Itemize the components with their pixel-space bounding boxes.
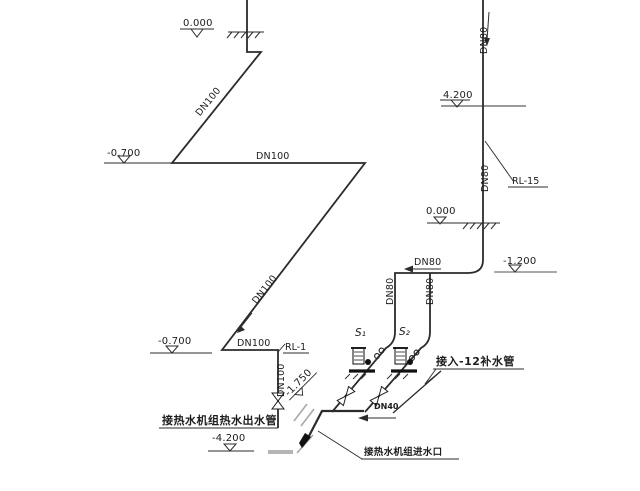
pipe-label: DN80	[425, 278, 436, 305]
pipe-label: DN100	[276, 363, 287, 397]
pipe-label: DN80	[479, 27, 490, 54]
elevation-value: 0.000	[426, 206, 456, 217]
gray-equipment-ghost-lines	[268, 404, 314, 454]
pump-icon	[387, 348, 417, 379]
elevation-marker: 4.200	[440, 90, 473, 107]
pipe-label: DN80	[414, 257, 441, 268]
pipe-label: DN40	[374, 402, 399, 411]
elevation-marker: 0.000	[180, 18, 214, 37]
pump-tags: S₁ S₂	[355, 326, 411, 339]
drawing-canvas: 0.000 -0.700 -0.700 -4.200 4.200	[0, 0, 640, 491]
elevation-value: 4.200	[443, 90, 473, 101]
elevation-marker: -0.700	[150, 336, 212, 353]
riser-tag: RL-15	[485, 141, 548, 187]
pipe-label: DN100	[194, 86, 224, 119]
riser-tag: RL-1	[278, 342, 309, 353]
annotation-text: 接入-12补水管	[436, 354, 515, 368]
pipe-label: DN80	[480, 165, 491, 192]
elevation-value: 0.000	[183, 18, 213, 29]
pump-tag-text: S₂	[399, 326, 411, 338]
elevation-value: -4.200	[212, 433, 245, 444]
pipe-label: DN100	[250, 273, 279, 306]
annotation-text: 接热水机组进水口	[364, 446, 442, 458]
elevation-value: -1.750	[283, 367, 314, 398]
elevation-marker: 0.000	[426, 206, 456, 224]
elevation-marker: -4.200	[208, 433, 254, 451]
elevation-value: -0.700	[107, 148, 140, 159]
annotation-text: 接热水机组热水出水管	[162, 413, 277, 427]
elevation-markers: 0.000 -0.700 -0.700 -4.200 4.200	[104, 18, 536, 451]
elevation-marker: -0.700	[104, 148, 172, 163]
main-outlet-pipe-run	[172, 0, 365, 428]
riser-tag-text: RL-15	[512, 176, 539, 187]
pipe-label: DN80	[385, 278, 396, 305]
annotation-inlet: 接热水机组进水口	[318, 431, 459, 459]
valve-icon	[337, 386, 355, 405]
pump-tag-text: S₁	[355, 327, 366, 339]
annotation-outlet: 接热水机组热水出水管	[159, 413, 278, 428]
riser-tags: RL-1 RL-15	[278, 141, 548, 353]
piping-axonometric-diagram: 0.000 -0.700 -0.700 -4.200 4.200	[0, 0, 640, 491]
elevation-marker: -1.200	[503, 256, 536, 272]
riser-tag-text: RL-1	[285, 342, 306, 353]
elevation-value: -0.700	[158, 336, 191, 347]
annotation-makeup: 接入-12补水管	[425, 354, 524, 384]
pump-icon	[345, 348, 375, 379]
elevation-marker: -1.750	[281, 365, 321, 405]
pipe-label: DN100	[237, 338, 271, 349]
pipe-label: DN100	[256, 151, 290, 162]
pipe-size-labels: DN100 DN100 DN100 DN100 DN100 DN80 DN80 …	[194, 27, 491, 411]
